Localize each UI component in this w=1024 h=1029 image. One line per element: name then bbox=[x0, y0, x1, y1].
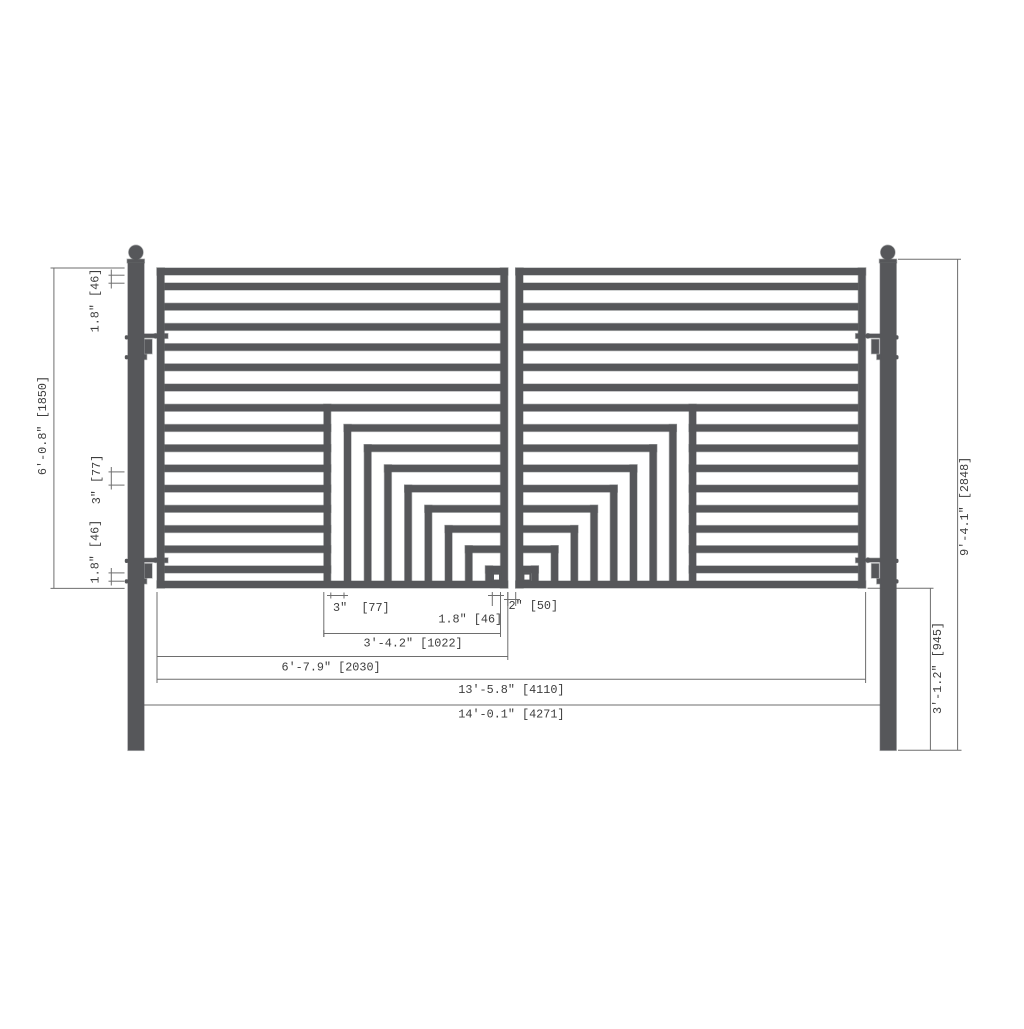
svg-text:3" [77]: 3" [77] bbox=[90, 455, 104, 505]
svg-text:3'-1.2" [945]: 3'-1.2" [945] bbox=[931, 622, 945, 714]
svg-text:9'-4.1" [2848]: 9'-4.1" [2848] bbox=[958, 457, 972, 556]
svg-text:1.8" [46]: 1.8" [46] bbox=[89, 520, 103, 584]
svg-text:2" [50]: 2" [50] bbox=[509, 599, 559, 613]
svg-text:1.8" [46]: 1.8" [46] bbox=[438, 613, 502, 627]
svg-text:1.8" [46]: 1.8" [46] bbox=[89, 269, 103, 333]
svg-text:13'-5.8" [4110]: 13'-5.8" [4110] bbox=[458, 683, 564, 697]
svg-text:14'-0.1" [4271]: 14'-0.1" [4271] bbox=[458, 708, 564, 722]
svg-text:6'-0.8" [1850]: 6'-0.8" [1850] bbox=[36, 376, 50, 475]
svg-text:6'-7.9" [2030]: 6'-7.9" [2030] bbox=[282, 661, 381, 675]
svg-text:3'-4.2" [1022]: 3'-4.2" [1022] bbox=[364, 637, 463, 651]
svg-text:3" [77]: 3" [77] bbox=[333, 601, 390, 615]
